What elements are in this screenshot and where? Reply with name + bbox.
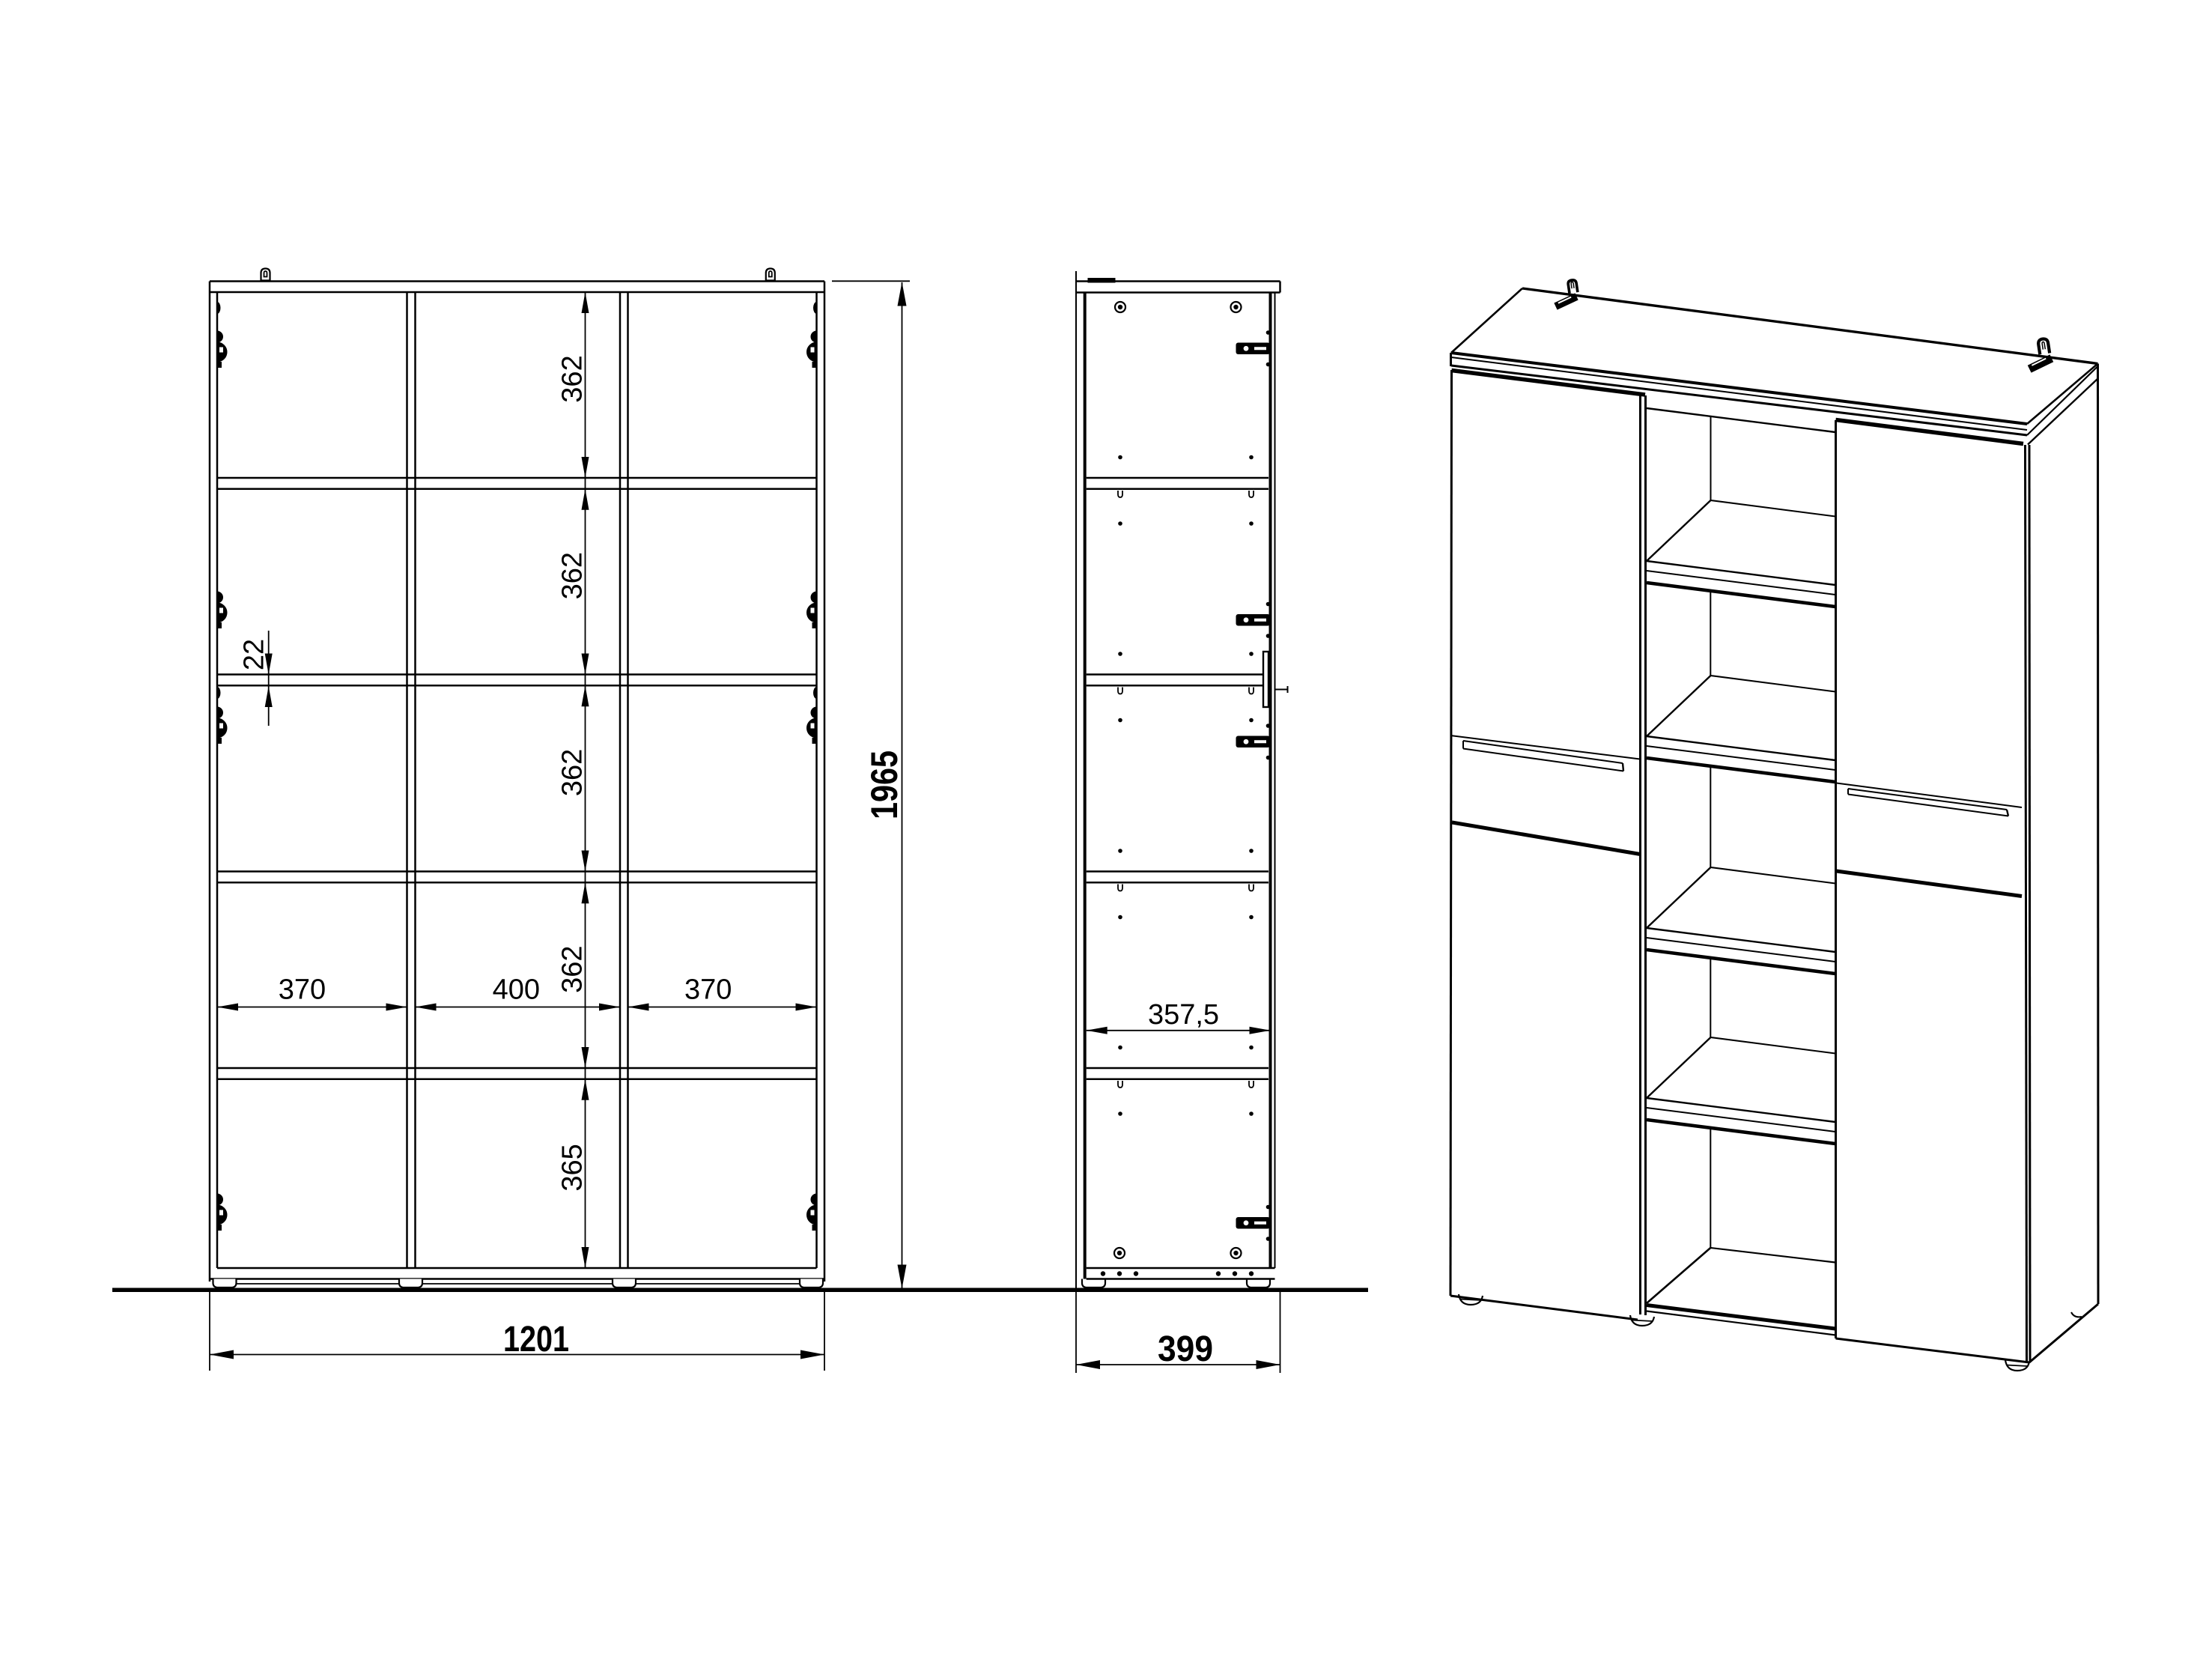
svg-text:357,5: 357,5 — [1148, 999, 1219, 1031]
svg-text:362: 362 — [557, 552, 589, 599]
svg-text:22: 22 — [239, 639, 270, 670]
svg-text:370: 370 — [684, 974, 732, 1006]
svg-text:362: 362 — [557, 945, 589, 992]
svg-text:1965: 1965 — [863, 750, 905, 819]
svg-text:400: 400 — [493, 974, 540, 1006]
svg-text:365: 365 — [557, 1144, 589, 1191]
svg-text:370: 370 — [279, 974, 326, 1006]
svg-text:362: 362 — [557, 749, 589, 796]
svg-text:399: 399 — [1158, 1329, 1213, 1369]
svg-text:362: 362 — [557, 355, 589, 402]
svg-text:1201: 1201 — [503, 1320, 569, 1359]
